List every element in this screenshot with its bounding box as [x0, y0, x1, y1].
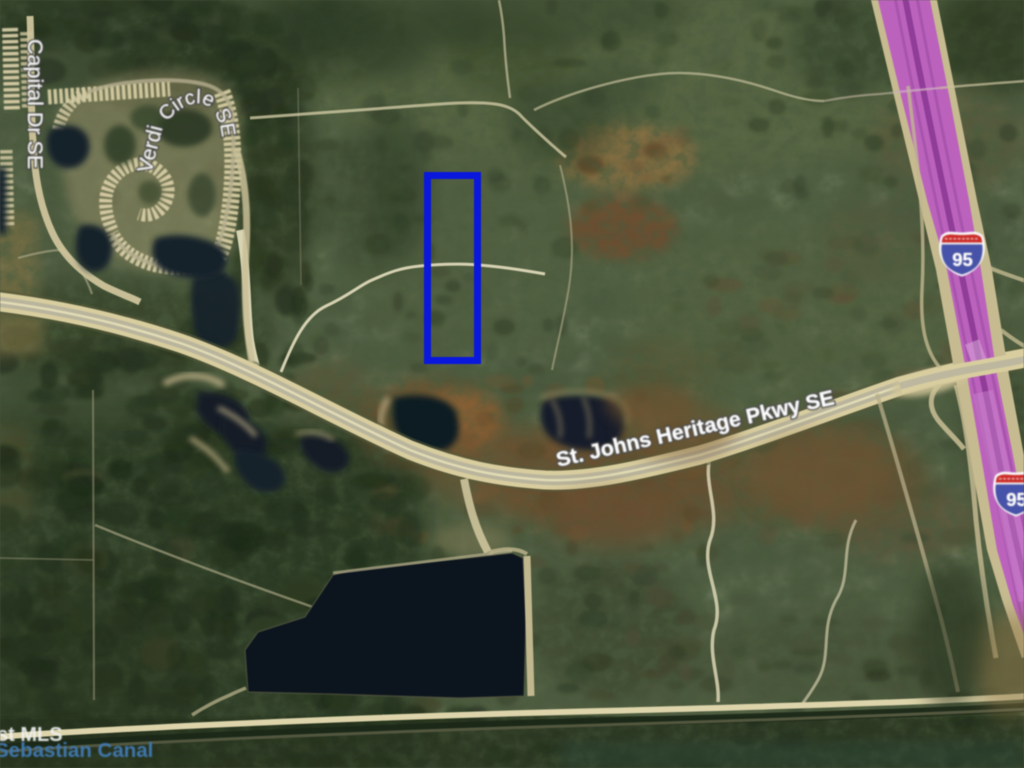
svg-text:Sebastian Canal: Sebastian Canal	[0, 739, 153, 762]
svg-text:95: 95	[952, 249, 973, 270]
svg-text:95: 95	[1006, 489, 1024, 510]
svg-text:Capital Dr SE: Capital Dr SE	[23, 39, 47, 169]
